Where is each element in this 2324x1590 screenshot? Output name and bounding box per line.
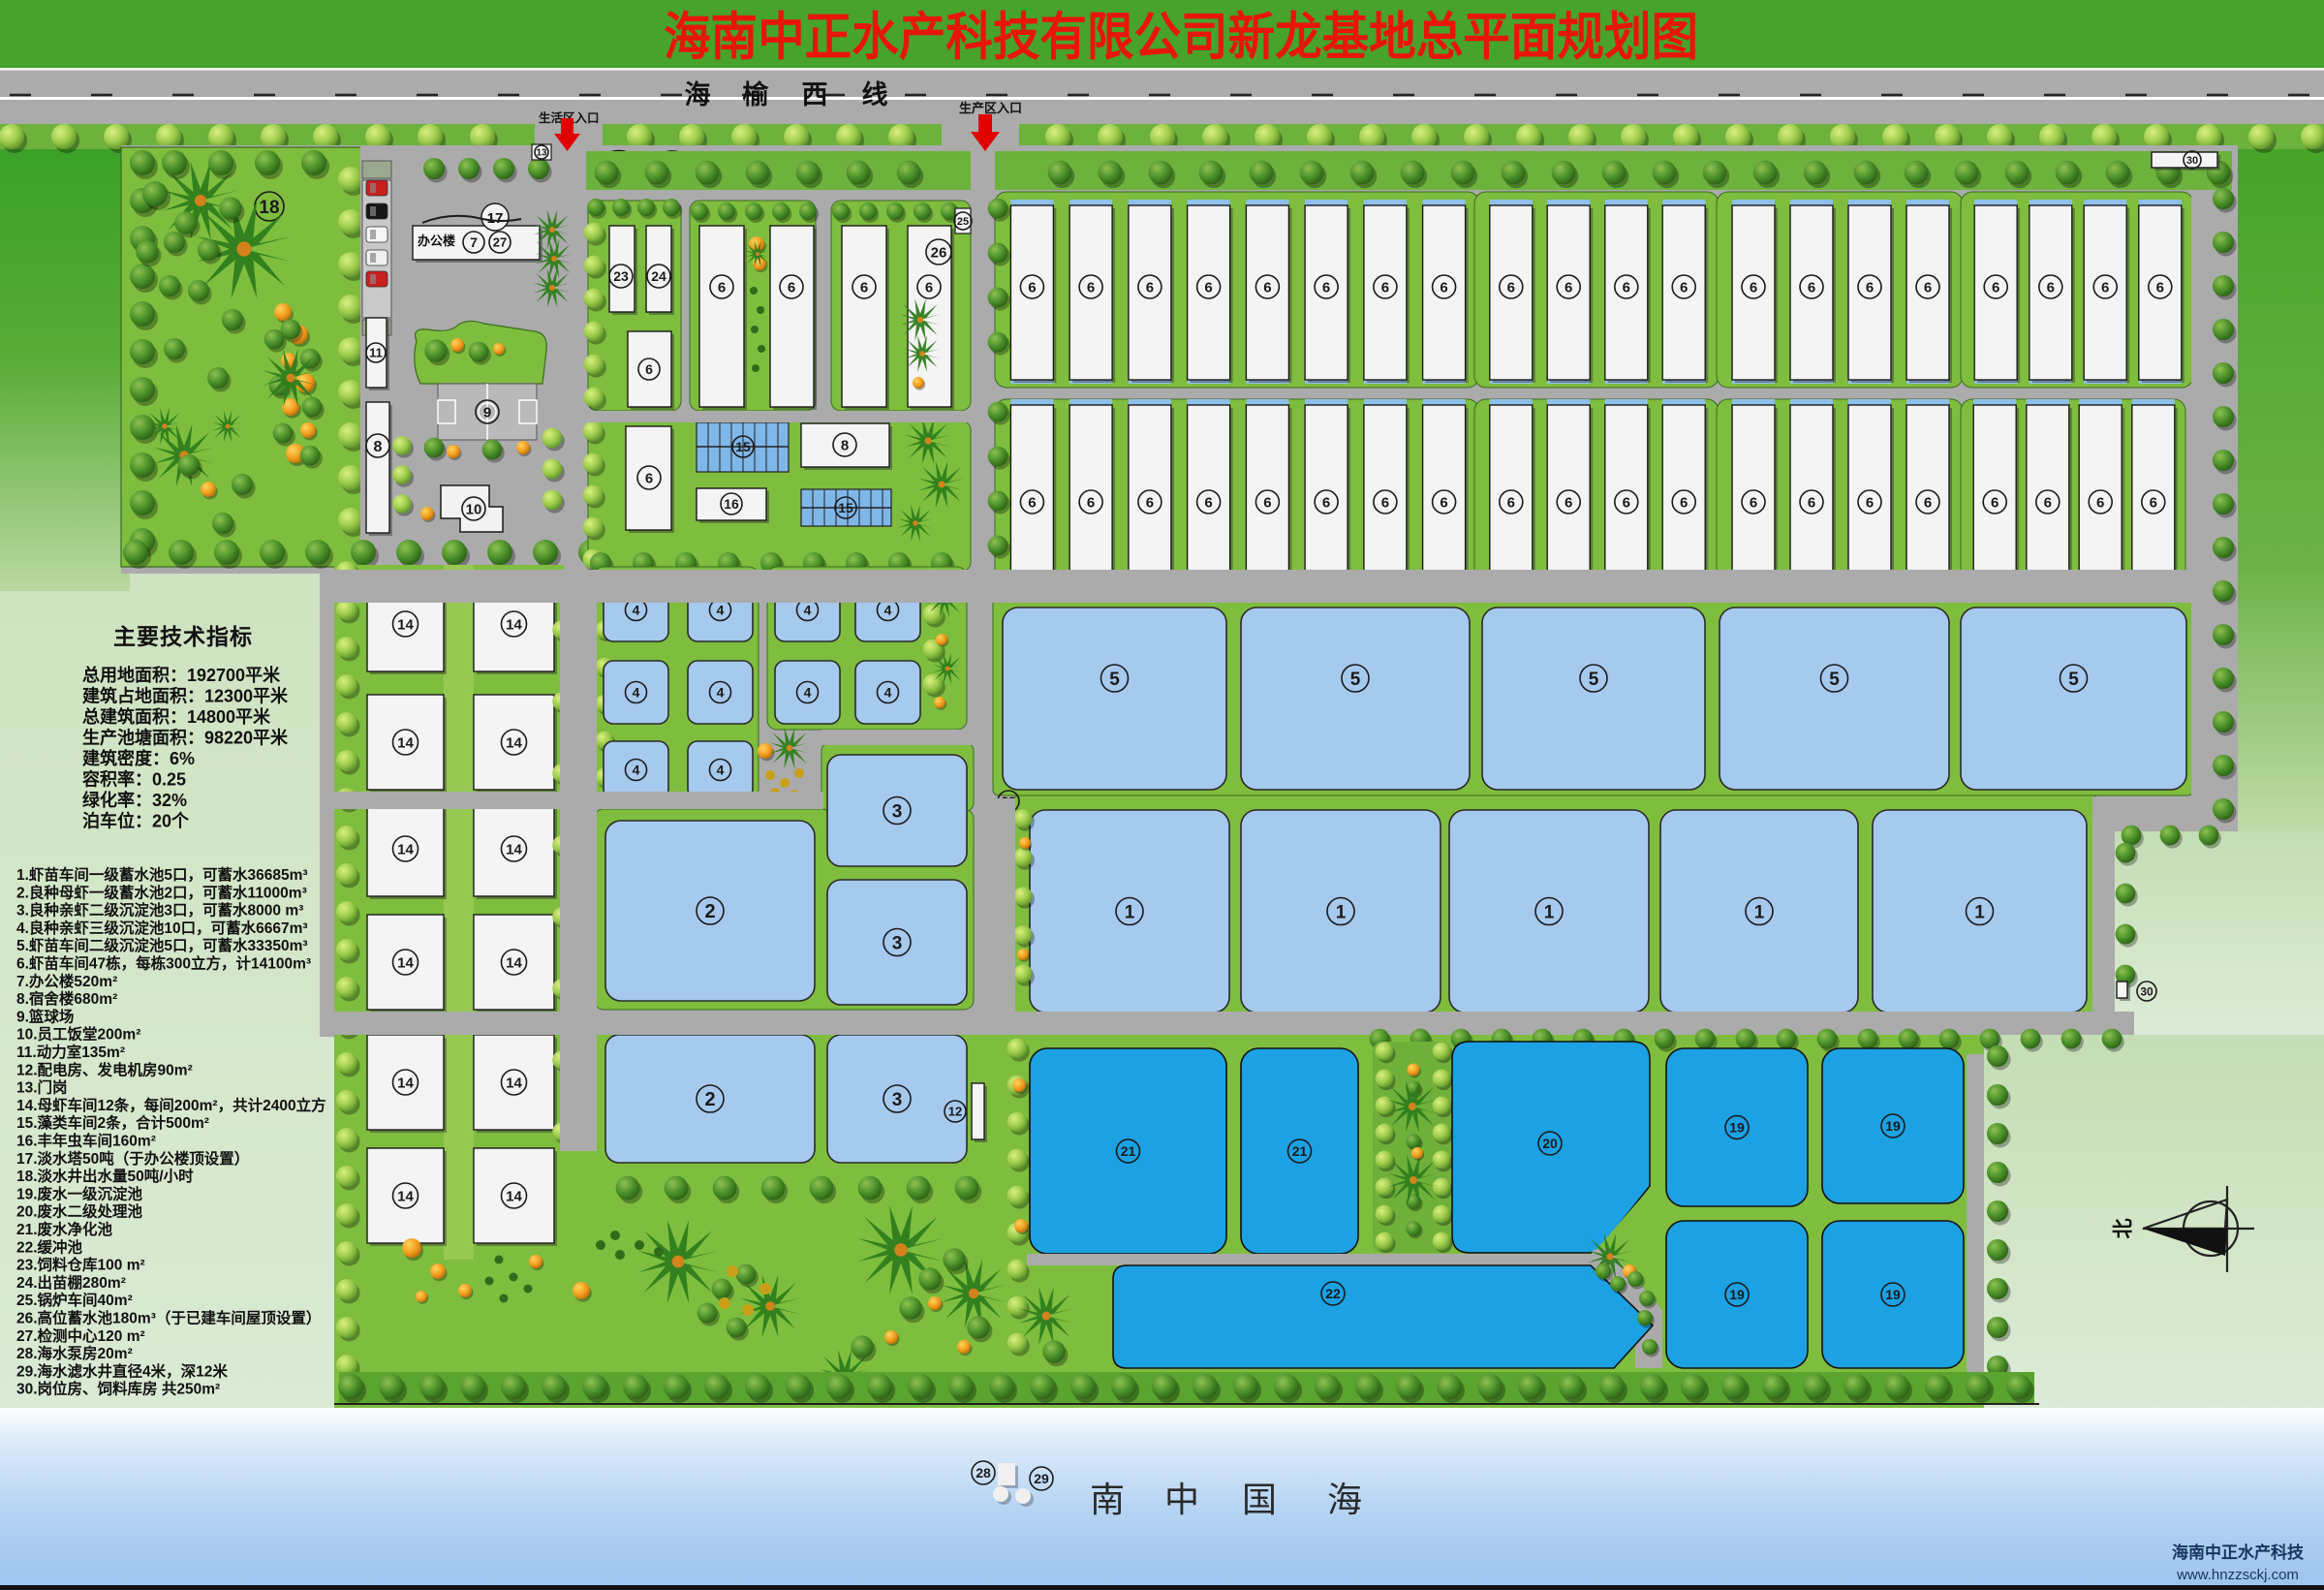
svg-text:3.良种亲虾二级沉淀池3口，可蓄水8000 m³: 3.良种亲虾二级沉淀池3口，可蓄水8000 m³ [16, 901, 303, 920]
svg-text:6: 6 [1565, 279, 1572, 296]
svg-text:西: 西 [802, 80, 828, 109]
svg-text:北: 北 [2113, 1219, 2135, 1239]
svg-text:榆: 榆 [743, 79, 770, 109]
svg-text:16: 16 [724, 496, 739, 512]
svg-text:9: 9 [483, 404, 491, 421]
svg-text:15: 15 [735, 439, 751, 454]
svg-text:南: 南 [1090, 1481, 1125, 1519]
svg-text:6: 6 [1680, 494, 1688, 511]
svg-text:14: 14 [397, 734, 414, 751]
svg-text:8: 8 [374, 439, 383, 455]
svg-text:国: 国 [1242, 1481, 1277, 1519]
svg-text:14: 14 [506, 1075, 522, 1091]
svg-text:1: 1 [1125, 902, 1135, 922]
svg-text:14: 14 [506, 734, 522, 751]
svg-text:6: 6 [2096, 494, 2104, 511]
svg-text:3: 3 [892, 933, 903, 953]
svg-text:6: 6 [1146, 494, 1154, 511]
svg-text:14: 14 [506, 954, 522, 971]
svg-text:6: 6 [1028, 279, 1036, 296]
svg-text:14: 14 [506, 841, 522, 857]
svg-text:6: 6 [645, 361, 653, 377]
svg-text:6: 6 [2150, 494, 2157, 511]
svg-text:11.动力室135m²: 11.动力室135m² [16, 1043, 125, 1061]
svg-text:8: 8 [841, 437, 849, 453]
svg-text:23: 23 [613, 268, 629, 284]
svg-text:1: 1 [1336, 902, 1347, 922]
svg-text:建筑占地面积：12300平米: 建筑占地面积：12300平米 [82, 686, 289, 706]
svg-text:10.员工饭堂200m²: 10.员工饭堂200m² [16, 1025, 140, 1044]
svg-text:生产池塘面积：98220平米: 生产池塘面积：98220平米 [82, 728, 289, 748]
svg-text:生产区入口: 生产区入口 [959, 101, 1022, 115]
svg-text:28: 28 [976, 1465, 991, 1481]
svg-text:6: 6 [1750, 494, 1757, 511]
svg-text:14: 14 [397, 1075, 414, 1091]
svg-text:14: 14 [397, 1188, 414, 1204]
svg-text:4: 4 [884, 603, 892, 618]
svg-text:6: 6 [1087, 279, 1095, 296]
svg-text:6: 6 [2101, 279, 2109, 296]
svg-text:17: 17 [487, 210, 504, 227]
svg-text:6: 6 [925, 279, 933, 296]
svg-text:6: 6 [1680, 279, 1688, 296]
svg-text:6: 6 [1808, 279, 1815, 296]
svg-text:6: 6 [1322, 279, 1330, 296]
svg-text:25.锅炉车间40m²: 25.锅炉车间40m² [16, 1291, 133, 1309]
svg-text:29: 29 [1034, 1471, 1049, 1486]
svg-text:6: 6 [1263, 494, 1271, 511]
svg-text:19: 19 [1885, 1287, 1901, 1302]
svg-text:泊车位：20个: 泊车位：20个 [82, 811, 190, 831]
svg-text:绿化率：32%: 绿化率：32% [82, 790, 187, 810]
svg-text:23.饲料仓库100 m²: 23.饲料仓库100 m² [16, 1256, 145, 1274]
svg-text:6: 6 [1866, 279, 1874, 296]
svg-text:www.hnzzsckj.com: www.hnzzsckj.com [2176, 1567, 2299, 1583]
svg-text:2.良种母虾一级蓄水池2口，可蓄水11000m³: 2.良种母虾一级蓄水池2口，可蓄水11000m³ [16, 883, 307, 901]
svg-text:2: 2 [704, 901, 715, 922]
svg-text:4: 4 [717, 685, 725, 701]
svg-text:19: 19 [1885, 1118, 1901, 1134]
svg-text:26: 26 [931, 244, 947, 261]
svg-text:6: 6 [1623, 494, 1630, 511]
svg-text:6: 6 [1087, 494, 1095, 511]
svg-text:5: 5 [1350, 670, 1361, 690]
svg-text:6: 6 [1381, 494, 1389, 511]
svg-text:22.缓冲池: 22.缓冲池 [16, 1237, 83, 1256]
svg-text:20.废水二级处理池: 20.废水二级处理池 [16, 1202, 143, 1221]
svg-text:14: 14 [506, 1188, 522, 1204]
svg-text:5: 5 [1829, 670, 1840, 690]
svg-text:6: 6 [1440, 494, 1447, 511]
svg-text:15: 15 [838, 500, 853, 515]
svg-text:8.宿舍楼680m²: 8.宿舍楼680m² [16, 989, 117, 1008]
svg-text:19: 19 [1729, 1287, 1745, 1302]
svg-text:6: 6 [718, 279, 726, 296]
svg-text:21.废水净化池: 21.废水净化池 [16, 1220, 113, 1238]
svg-text:6: 6 [1866, 494, 1874, 511]
svg-text:22: 22 [1325, 1286, 1341, 1301]
svg-text:14: 14 [397, 616, 414, 633]
svg-text:21: 21 [1121, 1143, 1136, 1159]
svg-text:总建筑面积：14800平米: 总建筑面积：14800平米 [82, 706, 271, 727]
svg-text:7.办公楼520m²: 7.办公楼520m² [16, 972, 117, 990]
svg-text:25: 25 [957, 216, 969, 228]
svg-text:30.岗位房、饲料库房 共250m²: 30.岗位房、饲料库房 共250m² [16, 1380, 220, 1398]
svg-text:4: 4 [717, 763, 725, 778]
svg-text:5: 5 [2068, 670, 2079, 690]
svg-text:6: 6 [860, 279, 868, 296]
svg-text:6.虾苗车间47栋，每栋300立方，计14100m³: 6.虾苗车间47栋，每栋300立方，计14100m³ [16, 954, 311, 973]
svg-text:海: 海 [685, 80, 711, 109]
svg-text:6: 6 [1623, 279, 1630, 296]
svg-text:12: 12 [948, 1105, 962, 1119]
svg-text:20: 20 [1542, 1136, 1558, 1151]
svg-text:24: 24 [651, 268, 666, 284]
svg-text:17.淡水塔50吨（于办公楼顶设置）: 17.淡水塔50吨（于办公楼顶设置） [16, 1149, 249, 1168]
svg-text:主要技术指标: 主要技术指标 [113, 624, 253, 649]
svg-text:19: 19 [1729, 1120, 1745, 1136]
svg-text:14: 14 [397, 841, 414, 857]
svg-text:6: 6 [1750, 279, 1757, 296]
svg-text:海: 海 [1327, 1481, 1362, 1519]
svg-text:18: 18 [259, 198, 279, 218]
svg-text:21: 21 [1292, 1143, 1308, 1159]
svg-text:3: 3 [892, 801, 903, 822]
svg-text:4: 4 [633, 763, 640, 778]
svg-text:1.虾苗车间一级蓄水池5口，可蓄水36685m³: 1.虾苗车间一级蓄水池5口，可蓄水36685m³ [16, 865, 308, 884]
svg-text:29.海水滤水井直径4米，深12米: 29.海水滤水井直径4米，深12米 [16, 1361, 228, 1380]
svg-text:11: 11 [369, 346, 383, 360]
svg-text:28.海水泵房20m²: 28.海水泵房20m² [16, 1344, 133, 1362]
svg-text:4: 4 [633, 685, 640, 701]
svg-text:7: 7 [470, 234, 478, 250]
svg-text:6: 6 [1924, 279, 1932, 296]
svg-text:6: 6 [1991, 494, 1999, 511]
svg-text:13: 13 [536, 148, 547, 159]
svg-text:6: 6 [1440, 279, 1447, 296]
svg-text:容积率：0.25: 容积率：0.25 [82, 769, 186, 790]
svg-text:6: 6 [1204, 279, 1212, 296]
svg-text:6: 6 [645, 470, 653, 486]
svg-text:1: 1 [1754, 902, 1765, 922]
svg-text:9.篮球场: 9.篮球场 [16, 1007, 74, 1025]
svg-text:13.门岗: 13.门岗 [16, 1078, 68, 1097]
svg-text:27.检测中心120 m²: 27.检测中心120 m² [16, 1326, 145, 1345]
svg-text:6: 6 [1204, 494, 1212, 511]
svg-text:6: 6 [788, 279, 795, 296]
svg-text:24.出苗棚280m²: 24.出苗棚280m² [16, 1273, 126, 1292]
svg-text:5: 5 [1109, 670, 1120, 690]
svg-text:10: 10 [466, 501, 482, 517]
svg-text:26.高位蓄水池180m³（于已建车间屋顶设置）: 26.高位蓄水池180m³（于已建车间屋顶设置） [16, 1309, 321, 1327]
svg-text:6: 6 [2047, 279, 2055, 296]
svg-text:6: 6 [1507, 494, 1515, 511]
svg-text:14.母虾车间12条，每间200m²，共计2400立方: 14.母虾车间12条，每间200m²，共计2400立方 [16, 1096, 326, 1114]
svg-text:14: 14 [506, 616, 522, 633]
svg-text:5.虾苗车间二级沉淀池5口，可蓄水33350m³: 5.虾苗车间二级沉淀池5口，可蓄水33350m³ [16, 936, 308, 954]
svg-text:6: 6 [1808, 494, 1815, 511]
svg-text:2: 2 [704, 1089, 715, 1110]
svg-text:6: 6 [1992, 279, 1999, 296]
svg-text:1: 1 [1544, 902, 1555, 922]
svg-text:6: 6 [1322, 494, 1330, 511]
svg-text:18.淡水井出水量50吨/小时: 18.淡水井出水量50吨/小时 [16, 1167, 194, 1185]
svg-text:4: 4 [804, 685, 812, 701]
svg-text:4: 4 [633, 603, 640, 618]
svg-text:15.藻类车间2条，合计500m²: 15.藻类车间2条，合计500m² [16, 1113, 209, 1132]
svg-text:海南中正水产科技有限公司新龙基地总平面规划图: 海南中正水产科技有限公司新龙基地总平面规划图 [664, 9, 1698, 66]
svg-text:30: 30 [2186, 155, 2198, 167]
svg-text:1: 1 [1974, 902, 1985, 922]
svg-text:办公楼: 办公楼 [418, 234, 455, 248]
svg-text:19.废水一级沉淀池: 19.废水一级沉淀池 [16, 1184, 143, 1202]
svg-text:线: 线 [862, 80, 888, 109]
svg-text:4.良种亲虾三级沉淀池10口，可蓄水6667m³: 4.良种亲虾三级沉淀池10口，可蓄水6667m³ [16, 919, 308, 937]
svg-text:海南中正水产科技: 海南中正水产科技 [2172, 1543, 2305, 1562]
svg-text:6: 6 [1028, 494, 1036, 511]
svg-text:3: 3 [892, 1090, 903, 1110]
svg-text:12.配电房、发电机房90m²: 12.配电房、发电机房90m² [16, 1060, 193, 1078]
svg-text:27: 27 [493, 235, 507, 250]
svg-text:总用地面积：192700平米: 总用地面积：192700平米 [82, 665, 281, 685]
svg-text:4: 4 [884, 685, 892, 701]
svg-text:6: 6 [2044, 494, 2052, 511]
svg-text:6: 6 [2156, 279, 2164, 296]
svg-text:6: 6 [1565, 494, 1572, 511]
svg-text:6: 6 [1381, 279, 1389, 296]
svg-text:14: 14 [397, 954, 414, 971]
svg-text:6: 6 [1507, 279, 1515, 296]
svg-text:16.丰年虫车间160m²: 16.丰年虫车间160m² [16, 1132, 156, 1150]
svg-text:4: 4 [717, 603, 725, 618]
svg-text:6: 6 [1924, 494, 1932, 511]
svg-text:4: 4 [804, 603, 812, 618]
svg-text:6: 6 [1146, 279, 1154, 296]
svg-text:30: 30 [2140, 984, 2154, 998]
svg-text:6: 6 [1263, 279, 1271, 296]
svg-text:中: 中 [1164, 1481, 1199, 1519]
svg-text:5: 5 [1589, 670, 1599, 690]
svg-text:建筑密度：6%: 建筑密度：6% [82, 748, 195, 768]
